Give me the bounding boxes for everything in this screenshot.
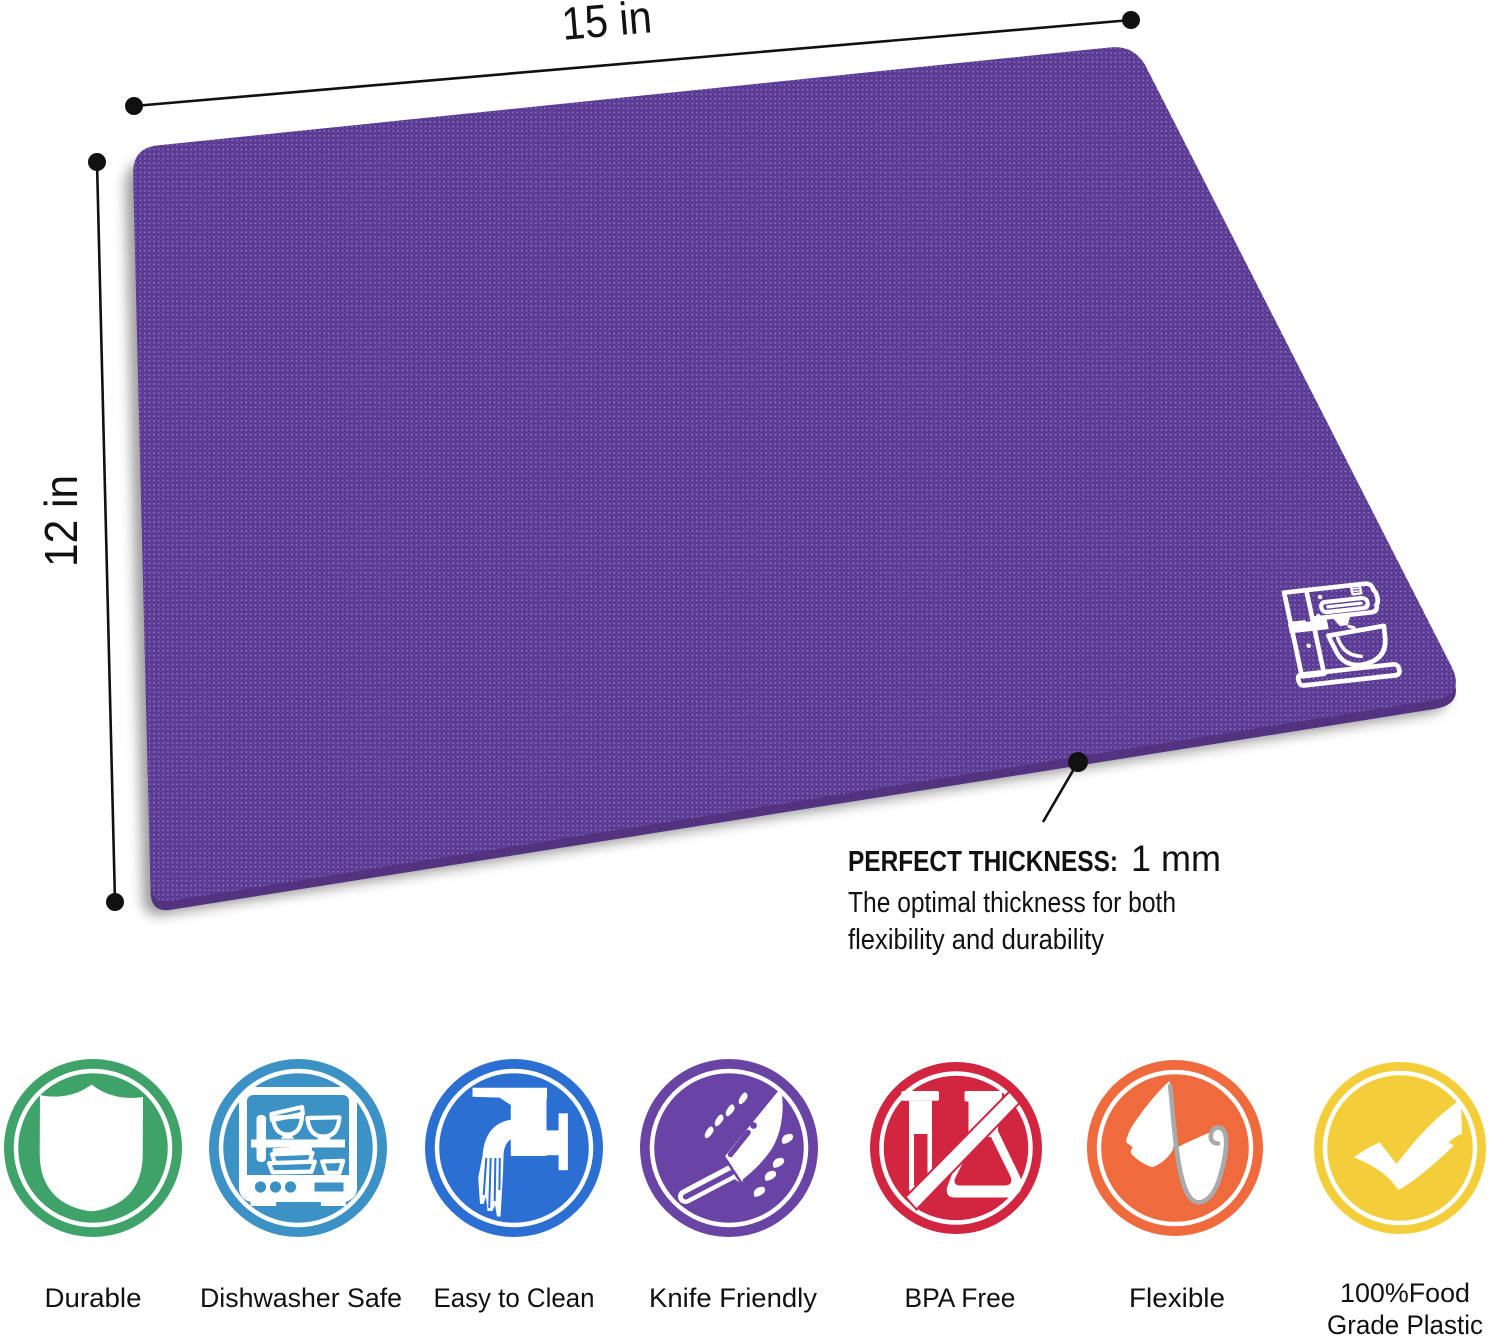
- svg-text:PERFECT THICKNESS:: PERFECT THICKNESS:: [848, 846, 1118, 878]
- svg-text:Flexible: Flexible: [1129, 1283, 1225, 1313]
- svg-text:Dishwasher Safe: Dishwasher Safe: [200, 1283, 402, 1313]
- svg-text:1 mm: 1 mm: [1131, 838, 1221, 879]
- svg-text:The optimal thickness for both: The optimal thickness for both: [848, 887, 1176, 919]
- svg-text:100%Food: 100%Food: [1340, 1278, 1470, 1308]
- svg-text:Easy to Clean: Easy to Clean: [434, 1283, 595, 1313]
- svg-text:flexibility and durability: flexibility and durability: [848, 924, 1104, 956]
- svg-text:15 in: 15 in: [560, 0, 654, 50]
- svg-text:BPA Free: BPA Free: [905, 1283, 1016, 1313]
- svg-text:Grade Plastic: Grade Plastic: [1327, 1310, 1483, 1337]
- svg-text:Knife Friendly: Knife Friendly: [649, 1283, 818, 1313]
- svg-text:12 in: 12 in: [35, 475, 87, 567]
- svg-text:Durable: Durable: [45, 1283, 142, 1313]
